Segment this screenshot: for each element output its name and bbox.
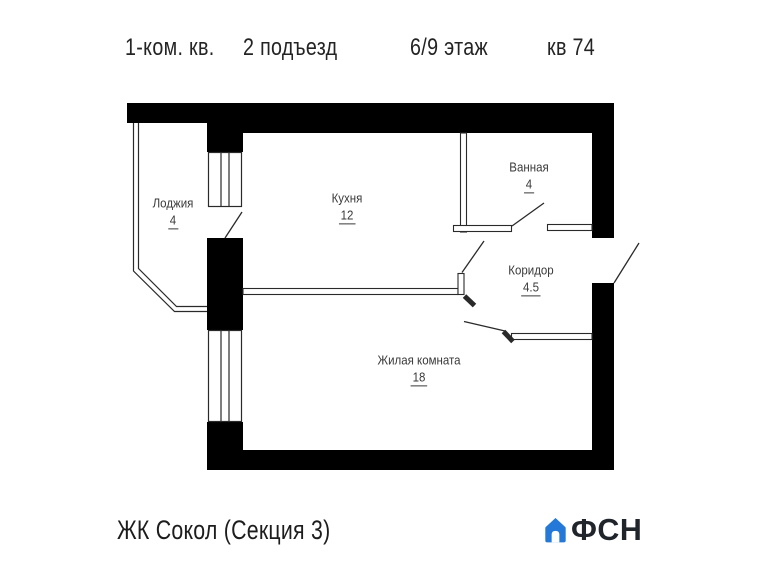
room-area: 4.5 [521,280,541,297]
room-name: Лоджия [153,196,194,212]
kitchen-door-jamb [465,296,475,306]
bathroom-left-wall [461,133,467,232]
room-name: Коридор [508,263,553,279]
bathroom-door-leaf [512,203,544,226]
floor-plan-svg [0,0,768,576]
bottom-wall [207,450,614,470]
room-label-corridor: Коридор 4.5 [508,263,553,296]
floorplan-page: 1-ком. кв. 2 подъезд 6/9 этаж кв 74 [0,0,768,576]
kitchen-loggia-window [209,153,242,207]
living-room-window [209,331,242,422]
left-column-bottom [207,422,243,470]
room-area: 12 [339,208,355,225]
room-name: Ванная [509,160,548,176]
partition-end-stub [458,274,464,295]
left-column-middle [207,238,243,330]
room-label-kitchen: Кухня 12 [332,191,363,224]
brand-name: ФСН [571,514,642,545]
bathroom-bottom-wall-right [548,225,593,231]
room-label-living-room: Жилая комната 18 [377,353,460,386]
window-frame [209,331,242,422]
door-jambs [465,296,514,342]
room-area: 18 [411,370,427,387]
loggia-top-wall [127,103,207,123]
right-wall-upper [592,103,614,238]
living-room-door-leaf [464,322,505,332]
room-area: 4 [168,213,178,230]
entrance-door-leaf [614,243,639,283]
room-area: 4 [524,177,534,194]
door-leaves [225,203,639,331]
house-icon-door [552,530,560,541]
kitchen-door-leaf [462,241,484,273]
window-frame [209,153,242,207]
main-top-wall [207,103,614,133]
room-label-loggia: Лоджия 4 [153,196,194,229]
right-wall-lower [592,283,614,470]
left-column-top [207,103,243,152]
brand-logo: ФСН [543,514,644,545]
bathroom-bottom-wall-left [454,226,512,232]
room-name: Кухня [332,191,363,207]
room-label-bathroom: Ванная 4 [509,160,548,193]
corridor-living-wall [512,334,593,340]
project-name: ЖК Сокол (Секция 3) [117,515,330,546]
room-name: Жилая комната [377,353,460,369]
loggia-door-leaf [225,212,242,238]
house-icon [543,517,568,543]
kitchen-living-partition [243,289,458,295]
